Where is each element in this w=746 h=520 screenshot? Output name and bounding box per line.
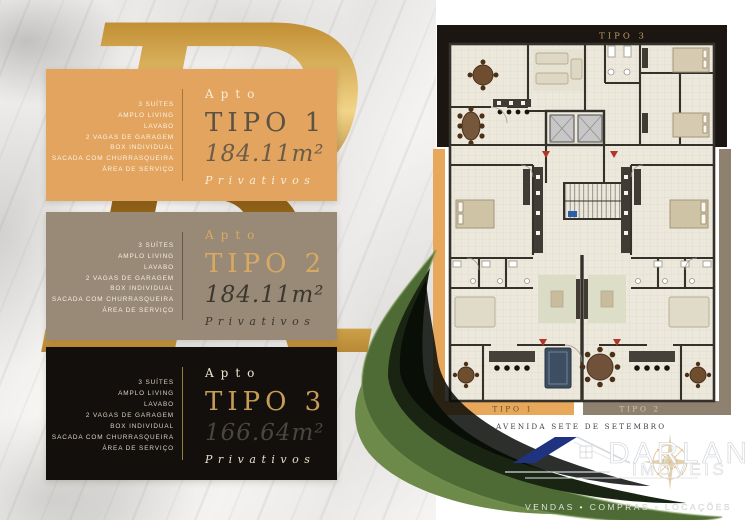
tipo-label: TIPO 3 — [205, 387, 337, 417]
plan-label-tipo-2: TIPO 2 — [619, 405, 660, 414]
footer-logo-area: AVENIDA SETE DE SETEMBRO DARLAN — [480, 415, 746, 520]
feature-item: LAVABO — [144, 263, 174, 274]
privativos-label: Privativos — [205, 453, 337, 466]
feature-item: LAVABO — [144, 122, 174, 133]
feature-item: 2 VAGAS DE GARAGEM — [86, 411, 174, 422]
feature-item: BOX INDIVIDUAL — [110, 422, 174, 433]
card-tipo-1: 3 SUÍTES AMPLO LIVING LAVABO 2 VAGAS DE … — [46, 69, 337, 201]
feature-item: 2 VAGAS DE GARAGEM — [86, 133, 174, 144]
feature-item: BOX INDIVIDUAL — [110, 284, 174, 295]
area-value: 166.64m² — [205, 420, 337, 446]
feature-item: BOX INDIVIDUAL — [110, 143, 174, 154]
brand-subtitle: IMÓVEIS — [632, 460, 727, 479]
stairwell — [564, 183, 628, 219]
area-value: 184.11m² — [205, 141, 337, 167]
card-specs: Apto TIPO 2 184.11m² Privativos — [183, 212, 337, 340]
area-value: 184.11m² — [205, 282, 337, 308]
feature-item: SACADA COM CHURRASQUEIRA — [52, 154, 174, 165]
feature-item: AMPLO LIVING — [118, 389, 174, 400]
feature-list: 3 SUÍTES AMPLO LIVING LAVABO 2 VAGAS DE … — [46, 69, 182, 201]
brand-tagline: VENDAS • COMPRAS • LOCAÇÕES — [525, 502, 732, 512]
privativos-label: Privativos — [205, 174, 337, 187]
card-specs: Apto TIPO 3 166.64m² Privativos — [183, 347, 337, 480]
card-tipo-3: 3 SUÍTES AMPLO LIVING LAVABO 2 VAGAS DE … — [46, 347, 337, 480]
address-label: AVENIDA SETE DE SETEMBRO — [495, 422, 666, 431]
apto-label: Apto — [205, 228, 337, 242]
tipo-label: TIPO 1 — [205, 108, 337, 138]
feature-item: SACADA COM CHURRASQUEIRA — [52, 433, 174, 444]
card-specs: Apto TIPO 1 184.11m² Privativos — [183, 69, 337, 201]
apto-label: Apto — [205, 87, 337, 101]
feature-item: AMPLO LIVING — [118, 111, 174, 122]
brochure-page: R 3 SUÍTES AMPLO LIVING LAVABO 2 VAGAS D… — [0, 0, 746, 520]
feature-item: ÁREA DE SERVIÇO — [102, 306, 174, 317]
feature-item: AMPLO LIVING — [118, 252, 174, 263]
elevator-core — [546, 111, 604, 145]
feature-list: 3 SUÍTES AMPLO LIVING LAVABO 2 VAGAS DE … — [46, 347, 182, 480]
tipo-label: TIPO 2 — [205, 249, 337, 279]
feature-item: 3 SUÍTES — [138, 100, 174, 111]
floor-plan: TIPO 3 TIPO 1 TIPO 2 — [433, 15, 731, 415]
feature-item: ÁREA DE SERVIÇO — [102, 444, 174, 455]
feature-item: LAVABO — [144, 400, 174, 411]
feature-item: 3 SUÍTES — [138, 241, 174, 252]
apto-label: Apto — [205, 366, 337, 380]
feature-item: 2 VAGAS DE GARAGEM — [86, 274, 174, 285]
plan-label-tipo-3: TIPO 3 — [599, 32, 647, 42]
feature-item: SACADA COM CHURRASQUEIRA — [52, 295, 174, 306]
feature-list: 3 SUÍTES AMPLO LIVING LAVABO 2 VAGAS DE … — [46, 212, 182, 340]
card-tipo-2: 3 SUÍTES AMPLO LIVING LAVABO 2 VAGAS DE … — [46, 212, 337, 340]
privativos-label: Privativos — [205, 315, 337, 328]
plan-label-tipo-1: TIPO 1 — [492, 405, 533, 414]
feature-item: 3 SUÍTES — [138, 378, 174, 389]
feature-item: ÁREA DE SERVIÇO — [102, 165, 174, 176]
